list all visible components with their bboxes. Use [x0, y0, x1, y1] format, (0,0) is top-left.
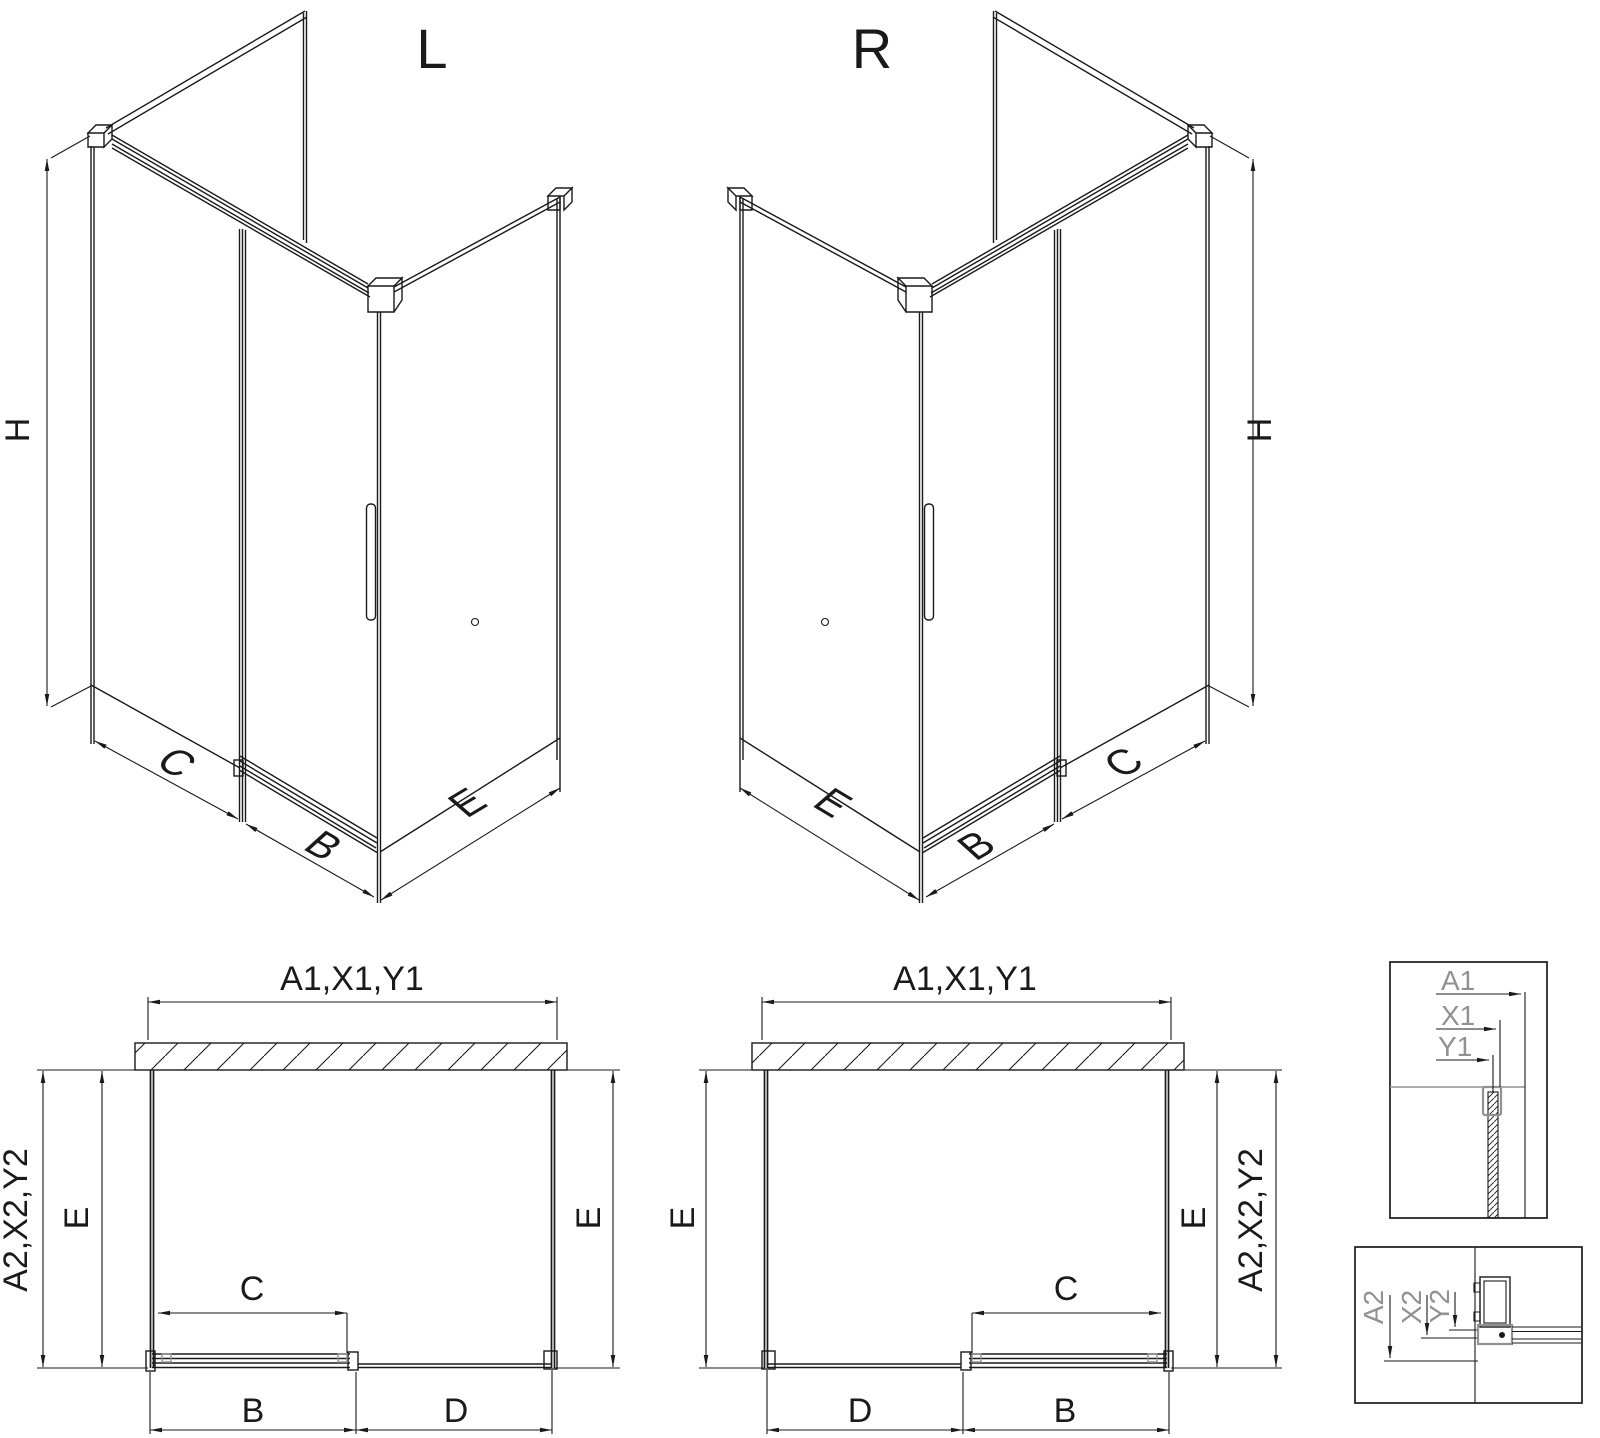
- plan-right-depth-outer-label: A2,X2,Y2: [1232, 1148, 1270, 1292]
- iso-left-panel-label: E: [438, 780, 496, 825]
- iso-left-door-label: B: [295, 823, 353, 868]
- plan-right-fixed-label: D: [848, 1392, 873, 1430]
- iso-right-panel-label: E: [804, 780, 862, 825]
- iso-view-left: L H C B E: [0, 11, 572, 903]
- iso-right-door-label: B: [947, 823, 1005, 868]
- plan-view-left: A1,X1,Y1 A2,X2,Y2 E E C B D: [0, 960, 620, 1434]
- detail-bottom-dim-refs: [1384, 1330, 1478, 1361]
- plan-left-width-label: A1,X1,Y1: [280, 960, 424, 998]
- technical-drawing-page: L H C B E R H C B E A1,X1,Y1 A2,X2,Y2 E …: [0, 0, 1600, 1438]
- detail-bottom-sill-clamp: [1478, 1325, 1512, 1344]
- detail-top-label-a: A1: [1441, 965, 1475, 996]
- plan-right-depth-right-label: E: [1175, 1207, 1213, 1230]
- detail-top-label-y: Y1: [1438, 1031, 1472, 1062]
- detail-bottom-label-y: Y2: [1424, 1289, 1455, 1323]
- plan-left-depth-right-label: E: [570, 1207, 608, 1230]
- detail-bottom-profile-inner: [1484, 1281, 1506, 1323]
- iso-left-height-label: H: [0, 418, 37, 443]
- plan-left-door-label: B: [242, 1392, 265, 1430]
- detail-bottom-track: A2 X2 Y2: [1355, 1247, 1582, 1403]
- plan-left-depth-outer-label: A2,X2,Y2: [0, 1148, 35, 1292]
- shower-enclosure-drawing: L H C B E R H C B E A1,X1,Y1 A2,X2,Y2 E …: [0, 0, 1600, 1438]
- iso-view-right: R H C B E: [728, 11, 1279, 903]
- detail-bottom-roller: [1499, 1332, 1505, 1338]
- plan-right-opening-label: C: [1054, 1270, 1079, 1308]
- iso-right-fixed-label: C: [1093, 739, 1153, 785]
- detail-top-dim-refs: [1493, 1020, 1500, 1092]
- plan-left-opening-label: C: [240, 1270, 265, 1308]
- detail-bottom-label-a: A2: [1358, 1290, 1389, 1324]
- plan-right-door-label: B: [1054, 1392, 1077, 1430]
- detail-bottom-rails: [1512, 1327, 1581, 1343]
- plan-right-wall-hatch: [752, 1043, 1184, 1070]
- plan-right-width-label: A1,X1,Y1: [893, 960, 1037, 998]
- iso-left-title: L: [416, 17, 447, 80]
- detail-top-fixing: A1 X1 Y1: [1390, 962, 1547, 1218]
- iso-right-title: R: [852, 17, 892, 80]
- plan-left-depth-left-label: E: [58, 1207, 96, 1230]
- plan-view-right: A1,X1,Y1 E E A2,X2,Y2 C D B: [664, 960, 1282, 1434]
- iso-left-fixed-label: C: [147, 739, 207, 785]
- iso-right-height-label: H: [1241, 418, 1279, 443]
- plan-right-depth-left-label: E: [664, 1207, 702, 1230]
- plan-left-wall-hatch: [135, 1043, 567, 1070]
- detail-bottom-label-x: X2: [1396, 1290, 1427, 1324]
- detail-bottom-frame: [1355, 1247, 1582, 1403]
- detail-top-label-x: X1: [1441, 1000, 1475, 1031]
- plan-left-fixed-label: D: [444, 1392, 469, 1430]
- detail-top-glass-section: [1488, 1092, 1498, 1218]
